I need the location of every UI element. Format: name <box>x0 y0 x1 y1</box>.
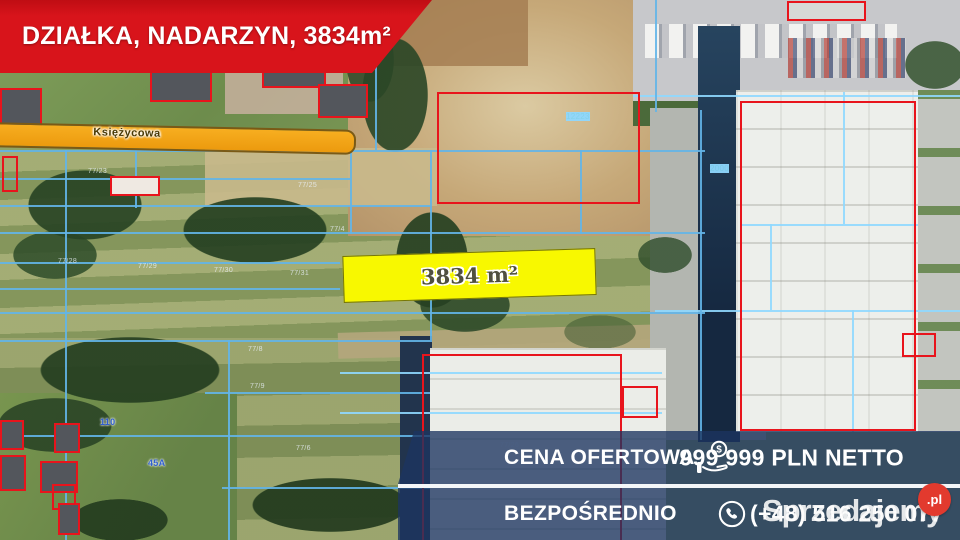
cadastral-line <box>633 95 960 97</box>
cadastral-line <box>205 392 430 394</box>
cadastral-line <box>0 262 340 264</box>
cadastral-line <box>0 232 705 234</box>
cadastral-line <box>350 150 352 234</box>
cadastral-line <box>700 110 702 440</box>
title-banner: DZIAŁKA, NADARZYN, 3834m² <box>0 0 432 73</box>
parcel-outline-sand <box>437 92 640 204</box>
cadastral-line <box>655 0 657 112</box>
map-parking-strip-right <box>916 90 960 432</box>
building-outline <box>902 333 936 357</box>
cadastral-line <box>0 178 350 180</box>
map-region-residential-bottom-left <box>0 393 237 540</box>
listing-image: Księżycowa 3834 m² 11045A12223200077/237… <box>0 0 960 540</box>
map-warehouse-shadow-strip <box>698 26 740 442</box>
contact-bar: BEZPOŚREDNIO (+48) 516 250 077 <box>398 488 960 540</box>
phone-icon <box>718 500 746 528</box>
building-outline <box>622 386 658 418</box>
building-outline <box>110 176 160 196</box>
listing-title: DZIAŁKA, NADARZYN, 3834m² <box>0 22 391 51</box>
price-value: 999 999 PLN NETTO <box>679 444 904 471</box>
building-outline-warehouse-right <box>740 101 916 431</box>
highlighted-parcel: 3834 m² <box>342 248 596 303</box>
cadastral-line <box>0 312 705 314</box>
building-outline-house <box>318 84 368 118</box>
cadastral-line <box>228 340 230 540</box>
price-bar: CENA OFERTOWA $ 999 999 PLN NETTO <box>398 431 960 484</box>
building-outline <box>787 1 866 21</box>
building-outline-house <box>58 503 80 535</box>
cadastral-line <box>0 288 340 290</box>
phone-value: (+48) 516 250 077 <box>750 501 944 528</box>
map-cars-row <box>788 38 906 78</box>
building-outline <box>2 156 18 192</box>
building-outline-house <box>54 423 80 453</box>
contact-label: BEZPOŚREDNIO <box>504 502 677 526</box>
building-outline-house <box>0 420 24 450</box>
building-outline-house <box>0 455 26 491</box>
map-region-dry-grass <box>205 148 437 206</box>
price-label: CENA OFERTOWA <box>504 446 695 470</box>
cadastral-line <box>430 150 432 342</box>
parcel-area-label: 3834 m² <box>421 261 519 289</box>
